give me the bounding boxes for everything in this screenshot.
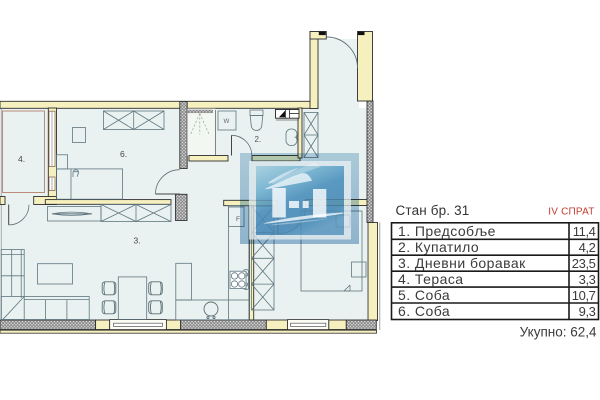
svg-text:3. Дневни боравак: 3. Дневни боравак [398,255,526,271]
svg-text:9,3: 9,3 [579,304,596,319]
svg-text:Стан бр. 31: Стан бр. 31 [396,203,470,218]
svg-text:W: W [224,118,230,125]
svg-text:2. Купатило: 2. Купатило [398,239,479,255]
svg-text:6. Соба: 6. Соба [398,303,450,319]
svg-text:IV СПРАТ: IV СПРАТ [548,207,594,218]
svg-text:Укупно: 62,4: Укупно: 62,4 [520,325,597,340]
svg-text:4,2: 4,2 [579,240,596,255]
svg-text:3,3: 3,3 [579,272,596,287]
svg-text:4.: 4. [18,154,25,164]
svg-text:6.: 6. [120,149,127,159]
svg-text:23,5: 23,5 [572,256,596,271]
svg-text:11,4: 11,4 [573,224,596,239]
svg-text:1. Предсобље: 1. Предсобље [398,223,496,239]
svg-text:2.: 2. [255,135,262,144]
svg-text:10,7: 10,7 [572,288,596,303]
svg-text:4. Тераса: 4. Тераса [398,271,464,287]
svg-text:3.: 3. [134,236,141,246]
svg-text:F: F [236,216,240,223]
svg-text:5. Соба: 5. Соба [398,287,450,303]
